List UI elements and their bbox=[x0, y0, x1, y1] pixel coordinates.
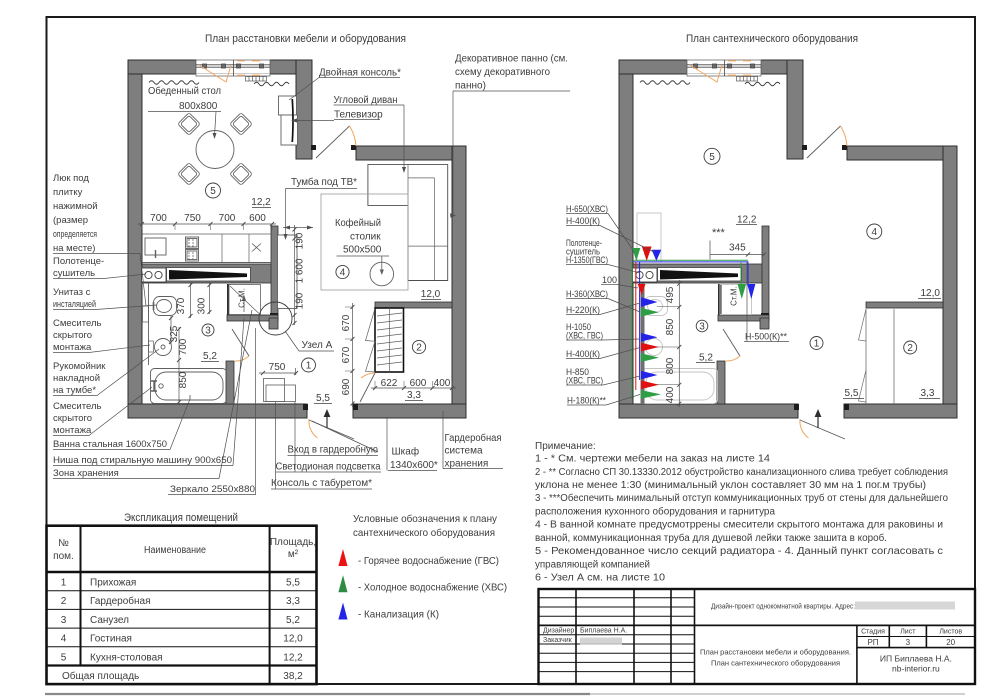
svg-text:5: 5 bbox=[709, 152, 715, 163]
svg-text:622: 622 bbox=[381, 378, 398, 389]
svg-text:- Горячее водоснабжение (ГВС): - Горячее водоснабжение (ГВС) bbox=[358, 555, 499, 567]
svg-text:панно): панно) bbox=[455, 81, 486, 92]
svg-text:700: 700 bbox=[219, 213, 236, 224]
svg-text:Светодионая подсветка: Светодионая подсветка bbox=[276, 462, 381, 473]
svg-text:Декоративное панно (см.: Декоративное панно (см. bbox=[455, 54, 568, 65]
svg-text:4: 4 bbox=[61, 634, 67, 645]
svg-text:345: 345 bbox=[729, 243, 746, 254]
svg-text:750: 750 bbox=[269, 362, 286, 373]
svg-text:800х800: 800х800 bbox=[179, 101, 218, 112]
svg-text:1 - * См. чертежи мебели на за: 1 - * См. чертежи мебели на заказ на лис… bbox=[535, 453, 770, 465]
svg-text:3,3: 3,3 bbox=[407, 390, 421, 401]
svg-text:***: *** bbox=[712, 227, 726, 239]
svg-text:Рукомойник: Рукомойник bbox=[53, 361, 106, 372]
svg-text:Ст.М.: Ст.М. bbox=[730, 286, 739, 306]
svg-text:2 - ** Согласно СП 30.13330.20: 2 - ** Согласно СП 30.13330.2012 обустро… bbox=[535, 466, 948, 478]
svg-text:2: 2 bbox=[416, 343, 422, 354]
svg-text:4: 4 bbox=[340, 268, 346, 279]
svg-text:700: 700 bbox=[178, 338, 189, 355]
svg-text:600: 600 bbox=[410, 378, 427, 389]
svg-text:Кофейный: Кофейный bbox=[335, 217, 381, 229]
svg-text:№: № bbox=[58, 538, 69, 549]
svg-text:План сантехнического оборудова: План сантехнического оборудования bbox=[686, 33, 858, 45]
svg-text:- Холодное водоснабжение (ХВС): - Холодное водоснабжение (ХВС) bbox=[358, 582, 507, 594]
svg-text:ИП Биплаева Н.А.: ИП Биплаева Н.А. bbox=[880, 654, 952, 664]
svg-text:3 - ***Обеспечить минимальный: 3 - ***Обеспечить минимальный отступ ком… bbox=[535, 492, 948, 504]
svg-text:Биплаева Н.А.: Биплаева Н.А. bbox=[580, 628, 627, 635]
svg-text:Примечание:: Примечание: bbox=[535, 441, 596, 452]
svg-text:5,5: 5,5 bbox=[286, 578, 300, 589]
svg-text:800: 800 bbox=[665, 357, 676, 374]
svg-text:5,2: 5,2 bbox=[203, 351, 217, 362]
svg-text:м²: м² bbox=[288, 549, 299, 560]
svg-text:Гардеробная: Гардеробная bbox=[445, 432, 502, 444]
svg-text:Смеситель: Смеситель bbox=[53, 318, 101, 329]
svg-text:2: 2 bbox=[907, 343, 913, 354]
svg-text:Тумба под ТВ*: Тумба под ТВ* bbox=[291, 176, 357, 188]
svg-text:4 - В ванной комнате предусмот: 4 - В ванной комнате предусмотррены смес… bbox=[535, 520, 943, 531]
svg-text:Гардеробная: Гардеробная bbox=[90, 595, 151, 607]
svg-text:3,3: 3,3 bbox=[921, 388, 935, 399]
svg-text:12,0: 12,0 bbox=[421, 289, 441, 300]
svg-text:38,2: 38,2 bbox=[283, 671, 303, 682]
svg-text:План сантехнического оборудова: План сантехнического оборудования bbox=[711, 659, 840, 668]
svg-text:670: 670 bbox=[341, 314, 352, 331]
svg-text:670: 670 bbox=[341, 346, 352, 363]
svg-text:Полотенце-: Полотенце- bbox=[53, 256, 104, 267]
svg-text:1: 1 bbox=[61, 578, 67, 589]
svg-text:- Канализация (К): - Канализация (К) bbox=[358, 609, 439, 621]
svg-text:монтажа: монтажа bbox=[53, 342, 92, 353]
svg-text:Кухня-столовая: Кухня-столовая bbox=[90, 652, 163, 663]
svg-text:схему декоративного: схему декоративного bbox=[455, 67, 550, 78]
svg-text:управляющей компанией: управляющей компанией bbox=[535, 560, 650, 571]
svg-text:плитку: плитку bbox=[53, 187, 83, 198]
svg-text:12,0: 12,0 bbox=[283, 634, 303, 645]
svg-text:690: 690 bbox=[341, 378, 352, 395]
svg-text:850: 850 bbox=[178, 371, 189, 388]
svg-text:6 - Узел А см. на листе 10: 6 - Узел А см. на листе 10 bbox=[535, 573, 665, 584]
svg-text:3: 3 bbox=[61, 615, 67, 626]
svg-text:пом.: пом. bbox=[53, 551, 74, 562]
svg-text:Шкаф: Шкаф bbox=[392, 446, 420, 458]
svg-text:Узел А: Узел А bbox=[302, 340, 333, 351]
svg-text:Консоль с табуретом*: Консоль с табуретом* bbox=[271, 477, 372, 489]
svg-text:5,5: 5,5 bbox=[845, 388, 859, 399]
svg-text:Н-500(К)**: Н-500(К)** bbox=[745, 332, 787, 343]
svg-text:система: система bbox=[445, 446, 483, 457]
svg-text:Экспликация помещений: Экспликация помещений bbox=[124, 512, 238, 524]
svg-text:Наименование: Наименование bbox=[144, 545, 206, 556]
svg-text:сушитель: сушитель bbox=[53, 268, 95, 279]
svg-text:5 - Рекомендованное число секц: 5 - Рекомендованное число секций радиато… bbox=[535, 546, 943, 557]
svg-text:3,3: 3,3 bbox=[286, 596, 300, 607]
svg-text:определяется: определяется bbox=[53, 229, 97, 240]
svg-text:12,2: 12,2 bbox=[251, 197, 271, 208]
svg-text:на тумбе*: на тумбе* bbox=[53, 385, 96, 396]
svg-text:нажимной: нажимной bbox=[53, 201, 98, 212]
svg-text:20: 20 bbox=[946, 638, 955, 647]
svg-text:2: 2 bbox=[61, 596, 67, 607]
svg-text:600: 600 bbox=[249, 213, 266, 224]
svg-text:5: 5 bbox=[61, 652, 67, 663]
svg-text:на месте): на месте) bbox=[53, 243, 95, 254]
svg-text:190: 190 bbox=[295, 232, 306, 249]
svg-text:Заказчик: Заказчик bbox=[543, 637, 573, 644]
svg-text:12,0: 12,0 bbox=[921, 288, 941, 299]
svg-text:Прихожая: Прихожая bbox=[90, 578, 136, 589]
svg-text:3: 3 bbox=[906, 638, 911, 647]
svg-text:1: 1 bbox=[814, 339, 820, 350]
svg-text:Лист: Лист bbox=[900, 629, 916, 636]
svg-text:400: 400 bbox=[434, 378, 451, 389]
svg-text:12,2: 12,2 bbox=[283, 652, 303, 663]
svg-text:накладной: накладной bbox=[53, 373, 100, 384]
svg-text:Ванна стальная 1600х750: Ванна стальная 1600х750 bbox=[53, 439, 167, 450]
svg-text:Смеситель: Смеситель bbox=[53, 401, 101, 412]
svg-text:Дизайнер: Дизайнер bbox=[543, 627, 574, 635]
svg-text:расположения кухонного оборудо: расположения кухонного оборудования и га… bbox=[535, 506, 775, 518]
svg-text:Люк под: Люк под bbox=[53, 173, 89, 184]
svg-text:Угловой диван: Угловой диван bbox=[334, 95, 398, 106]
svg-text:План расстановки мебели и обор: План расстановки мебели и оборудования. bbox=[700, 648, 851, 657]
svg-text:400: 400 bbox=[665, 386, 676, 403]
svg-text:700: 700 bbox=[150, 213, 167, 224]
svg-text:Гостиная: Гостиная bbox=[90, 634, 132, 645]
svg-text:5,2: 5,2 bbox=[699, 353, 713, 364]
svg-text:1: 1 bbox=[306, 361, 312, 372]
svg-text:1 600: 1 600 bbox=[295, 258, 306, 283]
svg-text:3: 3 bbox=[699, 322, 705, 333]
svg-text:монтажа: монтажа bbox=[53, 425, 92, 436]
svg-text:850: 850 bbox=[665, 318, 676, 335]
svg-text:РП: РП bbox=[867, 638, 878, 647]
svg-text:500х500: 500х500 bbox=[343, 245, 382, 256]
svg-text:Условные обозначения к плану: Условные обозначения к плану bbox=[353, 513, 498, 525]
svg-text:12,2: 12,2 bbox=[737, 215, 757, 226]
svg-text:скрытого: скрытого bbox=[53, 330, 92, 341]
svg-text:Стадия: Стадия bbox=[861, 629, 885, 636]
svg-text:скрытого: скрытого bbox=[53, 413, 92, 424]
svg-text:Зона хранения: Зона хранения bbox=[53, 468, 119, 479]
svg-text:5,5: 5,5 bbox=[316, 393, 330, 404]
svg-text:Санузел: Санузел bbox=[90, 615, 129, 626]
svg-text:3: 3 bbox=[205, 326, 211, 337]
svg-text:370: 370 bbox=[176, 297, 187, 314]
svg-text:инсталяцией: инсталяцией bbox=[53, 299, 96, 310]
svg-text:Зеркало 2550х880: Зеркало 2550х880 bbox=[170, 484, 255, 495]
svg-text:Общая площадь: Общая площадь bbox=[62, 670, 139, 682]
svg-text:750: 750 bbox=[184, 213, 201, 224]
svg-text:сантехнического оборудования: сантехнического оборудования bbox=[353, 527, 495, 539]
svg-text:Телевизор: Телевизор bbox=[334, 110, 383, 121]
svg-text:5,2: 5,2 bbox=[286, 615, 300, 626]
svg-text:хранения: хранения bbox=[445, 459, 489, 470]
svg-text:4: 4 bbox=[872, 227, 878, 238]
svg-text:Листов: Листов bbox=[939, 629, 962, 636]
svg-text:nb-interior.ru: nb-interior.ru bbox=[892, 664, 940, 674]
svg-text:1340х600*: 1340х600* bbox=[390, 460, 438, 471]
svg-text:5: 5 bbox=[210, 186, 216, 197]
svg-text:495: 495 bbox=[665, 286, 676, 303]
svg-text:Дизайн-проект однокомнатной кв: Дизайн-проект однокомнатной квартиры. Ад… bbox=[711, 602, 855, 611]
svg-text:Унитаз с: Унитаз с bbox=[53, 287, 91, 298]
svg-text:Вход в гардеробную: Вход в гардеробную bbox=[288, 444, 379, 456]
svg-text:Обеденный стол: Обеденный стол bbox=[148, 85, 221, 97]
svg-text:300: 300 bbox=[197, 297, 208, 314]
svg-text:190: 190 bbox=[295, 292, 306, 309]
svg-text:Ст.М.: Ст.М. bbox=[238, 288, 247, 308]
svg-text:Ниша под стиральную машину 900: Ниша под стиральную машину 900х650 bbox=[53, 455, 232, 466]
svg-text:(размер: (размер bbox=[53, 215, 88, 226]
svg-text:столик: столик bbox=[350, 232, 381, 243]
svg-text:Площадь,: Площадь, bbox=[270, 537, 316, 548]
svg-text:ванной, коммуникационная труба: ванной, коммуникационная труба для душев… bbox=[535, 532, 887, 544]
svg-text:уклона не менее 1:30 (минималь: уклона не менее 1:30 (минимальный уклон … bbox=[535, 479, 926, 491]
svg-text:Двойная консоль*: Двойная консоль* bbox=[319, 68, 401, 79]
svg-text:План расстановки мебели и обор: План расстановки мебели и оборудования bbox=[205, 33, 406, 45]
